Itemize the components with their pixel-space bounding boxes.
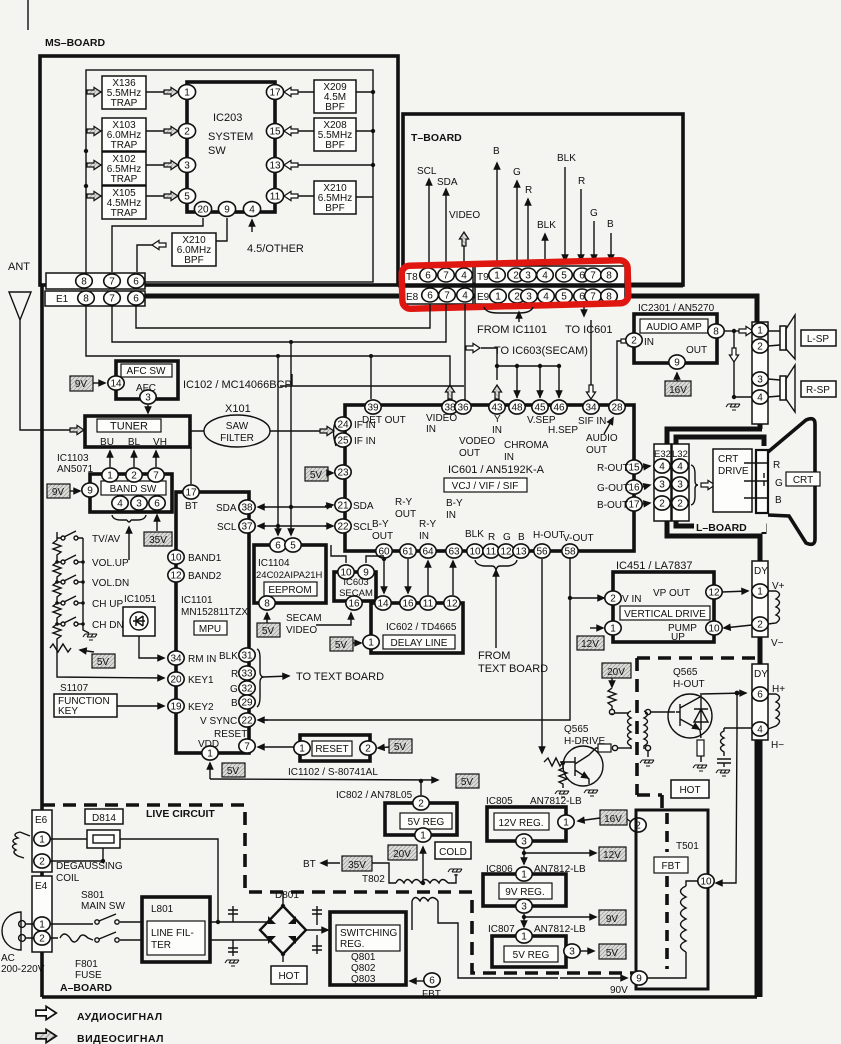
svg-text:IC102 / MC14066BCP: IC102 / MC14066BCP — [183, 379, 292, 391]
svg-text:9V: 9V — [52, 487, 65, 498]
svg-text:BLK: BLK — [465, 529, 484, 540]
svg-text:9: 9 — [636, 974, 642, 985]
svg-text:IC601 / AN5192K-A: IC601 / AN5192K-A — [448, 464, 545, 476]
svg-text:32: 32 — [241, 684, 253, 695]
svg-text:3: 3 — [526, 292, 532, 303]
svg-text:8: 8 — [83, 294, 89, 305]
svg-text:10: 10 — [340, 568, 352, 579]
svg-text:14: 14 — [377, 599, 389, 610]
svg-text:KEY: KEY — [58, 706, 78, 717]
svg-text:Y: Y — [494, 414, 501, 425]
svg-text:SW: SW — [208, 145, 226, 157]
svg-text:24C02AIPA21H: 24C02AIPA21H — [256, 570, 323, 581]
svg-text:TO TEXT BOARD: TO TEXT BOARD — [296, 671, 384, 683]
svg-text:5V REG: 5V REG — [408, 817, 445, 828]
svg-text:BAND1: BAND1 — [188, 553, 222, 564]
svg-text:29: 29 — [241, 698, 253, 709]
svg-text:15: 15 — [628, 463, 640, 474]
svg-text:AUDIO: AUDIO — [586, 433, 618, 444]
svg-text:3: 3 — [136, 499, 142, 510]
svg-text:OUT: OUT — [686, 345, 707, 356]
svg-text:2: 2 — [677, 499, 683, 510]
svg-text:RESET: RESET — [315, 744, 348, 755]
svg-text:6: 6 — [427, 291, 433, 302]
svg-text:10: 10 — [700, 877, 712, 888]
svg-text:16V: 16V — [669, 385, 687, 396]
svg-text:BLK: BLK — [219, 651, 238, 662]
svg-text:16: 16 — [402, 599, 414, 610]
svg-text:BL: BL — [128, 437, 141, 448]
svg-text:G-OUT: G-OUT — [597, 483, 629, 494]
svg-text:4: 4 — [461, 271, 467, 282]
svg-text:R: R — [525, 185, 532, 196]
svg-text:R: R — [231, 669, 238, 680]
svg-text:IN: IN — [446, 510, 456, 521]
svg-text:8: 8 — [713, 327, 719, 338]
svg-text:A–BOARD: A–BOARD — [60, 982, 112, 994]
svg-text:G: G — [513, 167, 521, 178]
svg-text:EEPROM: EEPROM — [268, 585, 311, 596]
svg-text:BAND SW: BAND SW — [110, 484, 157, 495]
svg-text:16: 16 — [348, 599, 360, 610]
svg-text:BAND2: BAND2 — [188, 571, 222, 582]
svg-text:12V REG.: 12V REG. — [498, 818, 543, 829]
svg-text:E9: E9 — [477, 292, 490, 303]
svg-text:1: 1 — [521, 932, 527, 943]
svg-text:13: 13 — [515, 547, 527, 558]
svg-text:T802: T802 — [362, 874, 385, 885]
svg-text:2: 2 — [131, 471, 137, 482]
svg-text:24: 24 — [337, 420, 349, 431]
svg-text:2: 2 — [418, 799, 424, 810]
svg-text:5: 5 — [561, 292, 567, 303]
svg-text:BPF: BPF — [184, 255, 203, 266]
svg-text:1: 1 — [757, 326, 763, 337]
svg-text:IC807: IC807 — [488, 924, 515, 935]
svg-text:2: 2 — [610, 594, 616, 605]
svg-text:Q802: Q802 — [351, 963, 376, 974]
svg-text:BT: BT — [303, 859, 316, 870]
svg-text:TRAP: TRAP — [111, 208, 138, 219]
svg-text:H+: H+ — [772, 684, 785, 695]
svg-text:R-Y: R-Y — [419, 519, 437, 530]
svg-text:UP: UP — [671, 632, 685, 643]
svg-text:5: 5 — [184, 192, 190, 203]
svg-text:AN7812-LB: AN7812-LB — [534, 924, 586, 935]
svg-text:SAW: SAW — [226, 421, 249, 432]
svg-text:TRAP: TRAP — [111, 174, 138, 185]
svg-text:AC: AC — [1, 953, 15, 964]
svg-text:OUT: OUT — [372, 531, 393, 542]
svg-text:TER: TER — [151, 940, 171, 951]
svg-text:SIF IN: SIF IN — [578, 416, 606, 427]
svg-text:R-Y: R-Y — [395, 497, 413, 508]
svg-text:6: 6 — [425, 271, 431, 282]
svg-text:9: 9 — [87, 486, 93, 497]
svg-text:SWITCHING: SWITCHING — [340, 928, 397, 939]
svg-text:39: 39 — [367, 403, 379, 414]
svg-text:1: 1 — [107, 471, 113, 482]
svg-text:DY: DY — [754, 669, 768, 680]
svg-text:64: 64 — [422, 547, 434, 558]
svg-text:5V: 5V — [335, 640, 348, 651]
svg-text:2: 2 — [513, 271, 519, 282]
svg-text:VH: VH — [153, 437, 167, 448]
svg-text:2: 2 — [631, 336, 637, 347]
svg-text:34: 34 — [585, 403, 597, 414]
svg-text:14: 14 — [110, 379, 122, 390]
svg-text:VIDEO: VIDEO — [426, 413, 457, 424]
svg-text:G: G — [775, 478, 783, 489]
svg-text:4: 4 — [462, 291, 468, 302]
svg-text:6: 6 — [154, 499, 160, 510]
svg-text:LIVE CIRCUIT: LIVE CIRCUIT — [146, 808, 215, 820]
svg-text:1: 1 — [207, 749, 213, 760]
svg-text:R: R — [773, 460, 780, 471]
svg-text:IC1051: IC1051 — [124, 594, 157, 605]
svg-text:11: 11 — [486, 547, 497, 558]
svg-text:1: 1 — [299, 744, 305, 755]
svg-text:BPF: BPF — [325, 140, 344, 151]
svg-text:VODEO: VODEO — [459, 436, 495, 447]
svg-text:IN: IN — [419, 531, 429, 542]
svg-text:5V: 5V — [310, 470, 323, 481]
svg-text:19: 19 — [170, 702, 182, 713]
svg-text:F801: F801 — [75, 959, 98, 970]
svg-text:IF IN: IF IN — [354, 420, 376, 431]
svg-text:3: 3 — [569, 947, 575, 958]
svg-text:31: 31 — [241, 651, 253, 662]
svg-text:7: 7 — [444, 291, 450, 302]
svg-text:IC602 / TD4665: IC602 / TD4665 — [386, 622, 457, 633]
svg-text:B-Y: B-Y — [372, 519, 389, 530]
svg-text:90V: 90V — [610, 985, 628, 996]
svg-text:KEY1: KEY1 — [188, 675, 214, 686]
svg-text:28: 28 — [611, 403, 623, 414]
svg-text:1: 1 — [39, 835, 45, 846]
svg-text:T–BOARD: T–BOARD — [411, 132, 462, 144]
svg-text:FROM IC1101: FROM IC1101 — [477, 324, 547, 336]
svg-text:OUT: OUT — [395, 509, 416, 520]
svg-text:VERTICAL DRIVE: VERTICAL DRIVE — [624, 609, 706, 620]
svg-text:48: 48 — [511, 403, 523, 414]
svg-text:7: 7 — [109, 277, 115, 288]
svg-text:IC1101: IC1101 — [181, 595, 213, 606]
svg-text:1: 1 — [521, 870, 527, 881]
svg-text:12: 12 — [708, 588, 720, 599]
svg-text:BU: BU — [100, 437, 114, 448]
svg-text:3: 3 — [145, 393, 151, 404]
svg-text:VIDEO: VIDEO — [286, 625, 317, 636]
svg-text:6: 6 — [275, 541, 281, 552]
svg-text:2: 2 — [757, 620, 763, 631]
svg-text:IF IN: IF IN — [354, 436, 376, 447]
svg-text:5V REG: 5V REG — [513, 950, 550, 961]
svg-text:TO IC601: TO IC601 — [565, 324, 613, 336]
svg-text:3: 3 — [521, 902, 527, 913]
svg-text:3: 3 — [184, 161, 190, 172]
svg-text:B-OUT: B-OUT — [597, 500, 628, 511]
svg-text:22: 22 — [241, 716, 253, 727]
svg-text:OUT: OUT — [459, 448, 480, 459]
svg-text:21: 21 — [337, 501, 349, 512]
svg-text:CRT: CRT — [793, 475, 813, 486]
svg-text:9V: 9V — [75, 379, 88, 390]
svg-text:4: 4 — [117, 499, 123, 510]
svg-text:61: 61 — [402, 547, 414, 558]
svg-text:12: 12 — [500, 547, 512, 558]
svg-text:4: 4 — [659, 462, 665, 473]
svg-text:36: 36 — [457, 403, 469, 414]
svg-text:1: 1 — [495, 292, 501, 303]
svg-text:Q565: Q565 — [564, 724, 589, 735]
svg-text:5: 5 — [561, 271, 567, 282]
svg-text:9: 9 — [674, 358, 680, 369]
svg-text:HOT: HOT — [679, 785, 700, 796]
svg-text:25: 25 — [337, 436, 349, 447]
svg-text:4: 4 — [757, 393, 763, 404]
svg-text:CH UP: CH UP — [92, 599, 123, 610]
svg-text:5V: 5V — [394, 742, 407, 753]
svg-text:MAIN SW: MAIN SW — [81, 901, 125, 912]
svg-text:22: 22 — [337, 522, 349, 533]
svg-text:7: 7 — [109, 294, 115, 305]
svg-text:35V: 35V — [348, 860, 366, 871]
svg-text:V-OUT: V-OUT — [563, 533, 594, 544]
svg-text:R: R — [578, 176, 585, 187]
svg-text:V SYNC: V SYNC — [200, 716, 237, 727]
svg-text:43: 43 — [491, 403, 503, 414]
svg-text:6: 6 — [757, 690, 763, 701]
svg-text:IC1104: IC1104 — [258, 558, 290, 569]
svg-text:2: 2 — [39, 934, 45, 945]
svg-text:9: 9 — [363, 568, 369, 579]
svg-text:4: 4 — [677, 462, 683, 473]
svg-text:B: B — [775, 495, 782, 506]
svg-text:V IN: V IN — [622, 594, 641, 605]
svg-text:VOL.DN: VOL.DN — [92, 578, 129, 589]
svg-text:1: 1 — [563, 818, 569, 829]
svg-text:BT: BT — [185, 501, 198, 512]
svg-text:38: 38 — [241, 503, 253, 514]
svg-text:T8: T8 — [406, 272, 418, 283]
svg-text:17: 17 — [269, 88, 281, 99]
svg-text:IN: IN — [504, 452, 514, 463]
svg-text:12V: 12V — [603, 850, 621, 861]
svg-text:T9: T9 — [477, 272, 489, 283]
svg-text:G: G — [590, 208, 598, 219]
svg-text:D814: D814 — [92, 813, 116, 824]
svg-text:BLK: BLK — [557, 153, 576, 164]
svg-text:4: 4 — [249, 205, 255, 216]
svg-text:1: 1 — [420, 831, 426, 842]
svg-text:VP OUT: VP OUT — [653, 588, 690, 599]
svg-text:12: 12 — [170, 571, 182, 582]
svg-text:R-OUT: R-OUT — [597, 463, 629, 474]
svg-text:CH DN: CH DN — [92, 620, 124, 631]
svg-text:KEY2: KEY2 — [188, 702, 214, 713]
svg-text:ВИДЕОСИГНАЛ: ВИДЕОСИГНАЛ — [77, 1033, 164, 1044]
svg-text:MN152811TZX: MN152811TZX — [181, 607, 248, 618]
svg-text:VCJ / VIF / SIF: VCJ / VIF / SIF — [452, 481, 519, 492]
svg-text:COLD: COLD — [439, 847, 467, 858]
svg-text:R: R — [488, 532, 495, 543]
svg-text:TRAP: TRAP — [111, 140, 138, 151]
svg-text:H.SEP: H.SEP — [548, 425, 578, 436]
svg-text:Q801: Q801 — [351, 952, 376, 963]
svg-text:4: 4 — [757, 725, 763, 736]
svg-text:SCL: SCL — [217, 522, 237, 533]
svg-text:BPF: BPF — [325, 102, 344, 113]
svg-text:5V: 5V — [606, 948, 619, 959]
svg-text:5V: 5V — [461, 777, 474, 788]
svg-text:63: 63 — [448, 547, 460, 558]
svg-text:Q565: Q565 — [673, 667, 698, 678]
svg-text:CRT: CRT — [718, 454, 738, 465]
svg-text:3: 3 — [525, 271, 531, 282]
svg-text:7: 7 — [590, 271, 596, 282]
svg-text:2: 2 — [365, 744, 371, 755]
svg-text:1: 1 — [184, 88, 190, 99]
svg-text:COIL: COIL — [56, 873, 80, 884]
svg-text:4: 4 — [543, 292, 549, 303]
svg-text:АУДИОСИГНАЛ: АУДИОСИГНАЛ — [77, 1011, 163, 1023]
svg-text:2: 2 — [659, 499, 665, 510]
svg-text:5V: 5V — [262, 626, 275, 637]
svg-text:L-SP: L-SP — [807, 334, 830, 345]
svg-text:35V: 35V — [149, 535, 167, 546]
svg-text:IC203: IC203 — [213, 112, 242, 124]
svg-text:2: 2 — [757, 342, 763, 353]
svg-text:AUDIO AMP: AUDIO AMP — [646, 322, 702, 333]
svg-text:IC802 / AN78L05: IC802 / AN78L05 — [336, 790, 413, 801]
svg-text:12V: 12V — [581, 639, 599, 650]
svg-text:17: 17 — [185, 488, 197, 499]
svg-text:3: 3 — [677, 480, 683, 491]
svg-text:SCL: SCL — [417, 166, 437, 177]
svg-text:DEGAUSSING: DEGAUSSING — [56, 861, 123, 872]
svg-text:6: 6 — [133, 277, 139, 288]
svg-text:8: 8 — [606, 271, 612, 282]
svg-text:9: 9 — [224, 205, 230, 216]
svg-text:DRIVE: DRIVE — [718, 466, 749, 477]
svg-text:V−: V− — [771, 638, 784, 649]
svg-text:H-OUT: H-OUT — [533, 530, 565, 541]
svg-text:9V: 9V — [606, 914, 619, 925]
svg-text:ANT: ANT — [8, 261, 30, 273]
svg-text:20V: 20V — [393, 849, 411, 860]
svg-text:SECAM: SECAM — [286, 613, 322, 624]
svg-text:B: B — [231, 698, 238, 709]
svg-text:4.5/OTHER: 4.5/OTHER — [247, 243, 304, 255]
svg-text:2: 2 — [184, 127, 190, 138]
svg-text:DELAY LINE: DELAY LINE — [391, 638, 448, 649]
svg-text:FUSE: FUSE — [75, 970, 102, 981]
svg-text:3: 3 — [521, 837, 527, 848]
svg-text:B: B — [493, 146, 500, 157]
svg-text:20: 20 — [197, 205, 209, 216]
svg-text:9V REG.: 9V REG. — [505, 887, 544, 898]
svg-text:5: 5 — [290, 541, 296, 552]
svg-text:16V: 16V — [604, 814, 622, 825]
svg-text:34: 34 — [170, 654, 182, 665]
svg-text:20V: 20V — [607, 667, 625, 678]
svg-text:6: 6 — [133, 294, 139, 305]
svg-text:58: 58 — [564, 547, 576, 558]
svg-text:B: B — [607, 219, 614, 230]
svg-text:BLK: BLK — [537, 220, 556, 231]
svg-text:LINE FIL-: LINE FIL- — [151, 928, 194, 939]
svg-text:3: 3 — [659, 480, 665, 491]
svg-text:FROM: FROM — [478, 650, 510, 662]
svg-text:L801: L801 — [151, 904, 174, 915]
svg-text:V+: V+ — [772, 581, 785, 592]
svg-text:IC1103: IC1103 — [57, 453, 89, 464]
svg-text:HOT: HOT — [278, 971, 299, 982]
svg-text:IN: IN — [426, 424, 436, 435]
svg-text:17: 17 — [628, 500, 640, 511]
svg-text:E6: E6 — [35, 815, 48, 826]
svg-text:1: 1 — [757, 587, 763, 598]
svg-text:3: 3 — [757, 375, 763, 386]
svg-text:2: 2 — [514, 292, 520, 303]
svg-text:2: 2 — [39, 857, 45, 868]
svg-text:13: 13 — [269, 161, 281, 172]
svg-text:FBT: FBT — [662, 861, 681, 872]
svg-text:X101: X101 — [225, 403, 251, 415]
svg-text:4: 4 — [542, 271, 548, 282]
svg-text:SDA: SDA — [353, 501, 374, 512]
svg-text:Q803: Q803 — [351, 974, 376, 985]
svg-text:B: B — [518, 532, 525, 543]
svg-text:SCL: SCL — [353, 522, 373, 533]
svg-text:1: 1 — [39, 920, 45, 931]
svg-text:15: 15 — [269, 127, 281, 138]
svg-text:6: 6 — [429, 976, 435, 987]
svg-text:VOL.UP: VOL.UP — [92, 558, 129, 569]
svg-text:E8: E8 — [406, 292, 419, 303]
svg-text:H−: H− — [771, 740, 784, 751]
svg-text:8: 8 — [81, 277, 87, 288]
svg-text:AFC SW: AFC SW — [127, 366, 166, 377]
svg-text:200-220V: 200-220V — [1, 964, 45, 975]
svg-text:CHROMA: CHROMA — [504, 440, 549, 451]
svg-text:7: 7 — [244, 742, 250, 753]
svg-text:11: 11 — [270, 192, 281, 203]
svg-text:D801: D801 — [275, 890, 299, 901]
svg-text:T501: T501 — [676, 841, 699, 852]
svg-text:RM IN: RM IN — [188, 654, 216, 665]
svg-text:H-OUT: H-OUT — [673, 679, 705, 690]
svg-text:BPF: BPF — [325, 203, 344, 214]
svg-text:TRAP: TRAP — [111, 98, 138, 109]
svg-text:R-SP: R-SP — [806, 385, 830, 396]
svg-text:TUNER: TUNER — [110, 421, 148, 433]
svg-text:TV/AV: TV/AV — [92, 534, 120, 545]
svg-text:REG.: REG. — [340, 939, 364, 950]
svg-text:E1: E1 — [56, 294, 69, 305]
svg-text:SDA: SDA — [437, 177, 458, 188]
svg-text:8: 8 — [264, 599, 270, 610]
svg-text:10: 10 — [708, 624, 720, 635]
svg-text:16: 16 — [628, 483, 640, 494]
svg-text:45: 45 — [534, 403, 546, 414]
svg-text:FILTER: FILTER — [220, 433, 254, 444]
svg-text:AN5071: AN5071 — [57, 464, 94, 475]
svg-text:1: 1 — [368, 638, 374, 649]
svg-text:20: 20 — [170, 675, 182, 686]
svg-text:5V: 5V — [227, 766, 240, 777]
